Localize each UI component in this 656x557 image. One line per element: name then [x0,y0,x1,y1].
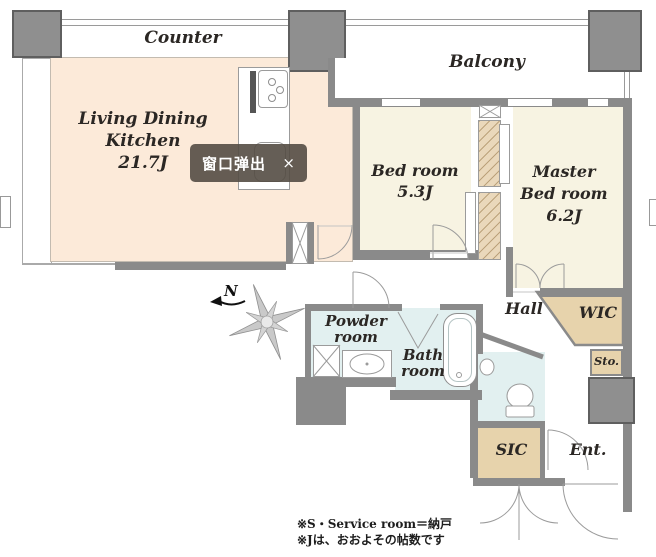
closet-upper [478,120,501,187]
stove-burner [268,94,276,102]
wall [340,377,396,387]
window-opening [588,99,608,106]
wall [540,288,632,297]
stove-burner [276,86,284,94]
counter-label: Counter [130,30,236,48]
wall [328,98,358,107]
bedroom-label: Bed room [355,163,475,180]
ldk-label-line1: Living Dining [73,111,213,129]
closet-lower [478,192,501,260]
washer-space [313,345,340,377]
door-opening [430,252,468,258]
powder-label-line2: room [320,330,392,346]
north-label: N [223,282,239,300]
pipe-shaft-box [479,105,501,118]
door-arc [519,484,558,523]
wall [305,304,311,380]
kitchen-panel [250,71,256,113]
footnote-tatami: ※Jは、おおよその帖数です [297,531,445,548]
window-opening [382,99,420,106]
wall [305,304,402,311]
left-edge-stub [0,196,11,228]
entrance-label: Ent. [558,442,618,459]
master-size-label: 6.2J [508,208,620,225]
popup-close-icon[interactable]: × [282,154,295,172]
popup-label: 窗口弹出 [202,153,266,174]
wall-thin [22,263,115,265]
wall [623,107,632,377]
wall [473,478,565,486]
door-arc [480,484,519,523]
door-arc [563,484,618,539]
closet-door-panel-lower [465,192,476,254]
wall [390,390,482,400]
wic-label: WIC [570,305,626,322]
wall [540,428,545,478]
room-toilet [478,352,545,421]
right-edge-stub [649,199,656,226]
popup-tooltip: 窗口弹出 × [190,144,307,182]
floorplan: N Counter Balcony Living Dining Kitchen … [0,0,656,557]
side-balcony-strip [22,58,52,265]
pillar-top-right [588,10,642,72]
wall [478,421,545,428]
pipe-shaft-box [292,222,308,264]
balcony-label: Balcony [437,54,537,72]
stove-burner [268,78,276,86]
hall-label: Hall [496,301,552,318]
wall [623,424,632,480]
pillar-bottom-right [588,377,635,424]
storage-label: Sto. [590,355,623,367]
door-arc [353,272,389,308]
bedroom-size-label: 5.3J [355,184,475,201]
north-arrowhead [210,296,222,306]
powder-vanity [342,350,392,378]
wall [476,304,483,354]
north-arrow [219,301,245,305]
wall [506,247,513,297]
compass-rose: N [210,271,318,374]
wall-block [296,377,346,425]
sic-label: SIC [484,442,539,459]
balcony-rail [346,19,588,26]
wall [115,262,286,270]
window-opening [508,99,552,106]
master-label-line1: Master [508,164,620,181]
pillar-top-left [12,10,62,58]
wall [623,480,632,512]
ldk-notch [335,58,353,98]
master-label-line2: Bed room [508,186,620,203]
bath-label-line2: room [398,364,448,380]
bathtub-inner [448,318,472,382]
counter-rail [62,19,288,26]
footnote-service-room: ※S・Service room＝納戸 [297,515,452,532]
wall [308,222,314,264]
